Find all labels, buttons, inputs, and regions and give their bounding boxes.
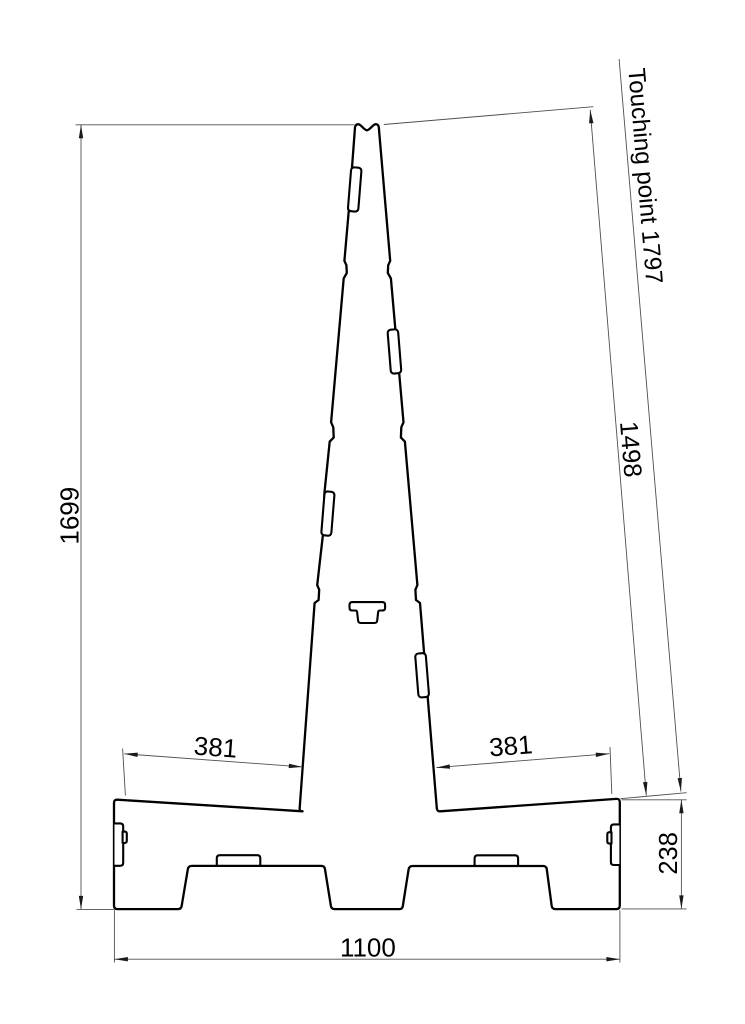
- svg-text:1100: 1100: [340, 932, 396, 962]
- svg-text:1498: 1498: [614, 420, 647, 478]
- svg-text:381: 381: [193, 731, 238, 764]
- svg-text:381: 381: [488, 729, 534, 762]
- svg-text:238: 238: [655, 832, 683, 875]
- svg-text:1699: 1699: [54, 487, 84, 545]
